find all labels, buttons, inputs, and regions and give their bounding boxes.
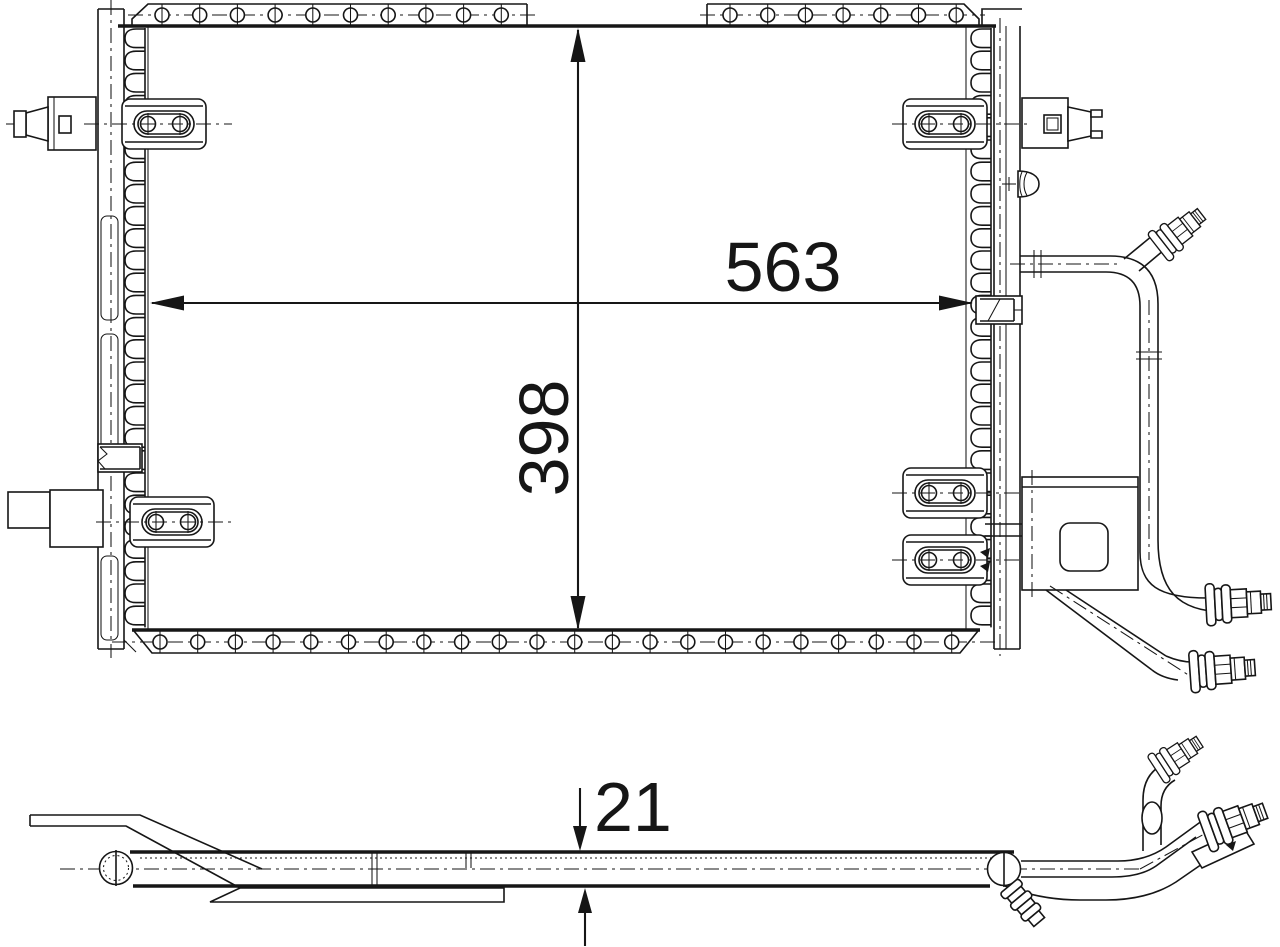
side-pipes [1005,765,1230,900]
side-view: 21 [30,728,1272,946]
arrowhead-down [571,596,586,630]
mounting-rail-top-right [700,4,985,26]
dimension-width-label: 563 [725,228,842,306]
dimension-depth-label: 21 [594,768,672,846]
bracket-bottom-right-lower [892,535,1030,585]
connector-top-right [1022,98,1102,148]
mounting-rail-bottom [112,631,996,653]
bracket-top-left [84,99,232,149]
outlet-fitting-upper [1205,581,1272,626]
side-left-tube-section [100,850,133,886]
dimension-height-label: 398 [505,380,583,497]
arrowhead-left [150,296,184,311]
front-view: 563 398 [6,0,1272,693]
dimension-height: 398 [505,28,586,630]
dimension-width: 563 [150,228,973,311]
connection-block [1022,470,1138,600]
dimension-depth: 21 [573,768,672,946]
outlet-fitting-lower [1189,647,1257,693]
fastener-screw [1002,171,1039,197]
drawing-canvas: 563 398 [0,0,1280,947]
service-port-fitting [1147,200,1213,262]
arrowhead-right [939,296,973,311]
bracket-bottom-left [96,497,232,547]
bracket-bottom-right-upper [892,468,1030,518]
side-body [60,852,1140,886]
bracket-top-right [892,99,1030,149]
rail-holes [153,631,959,653]
arrowhead-up [571,28,586,62]
arrowhead-down [573,826,587,851]
fin-tab-left [98,444,142,472]
fin-tab-right [976,296,1022,324]
block-bottom-left [8,490,103,547]
arrowhead-up [578,888,592,913]
condenser-technical-drawing: 563 398 [0,0,1280,947]
mounting-rail-top-left [128,4,540,26]
side-fitting-upper [1147,728,1209,785]
connector-top-left [6,97,96,150]
